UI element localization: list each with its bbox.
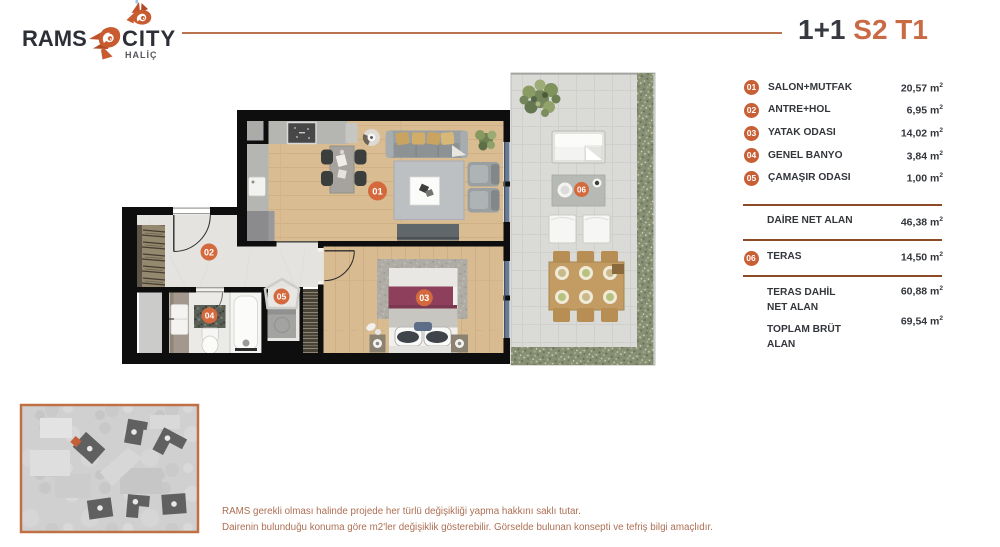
svg-text:03: 03 (419, 293, 429, 303)
svg-text:02: 02 (204, 247, 214, 257)
svg-text:04: 04 (205, 311, 215, 321)
svg-text:01: 01 (372, 187, 383, 198)
svg-text:06: 06 (577, 186, 586, 195)
svg-text:05: 05 (277, 292, 287, 302)
